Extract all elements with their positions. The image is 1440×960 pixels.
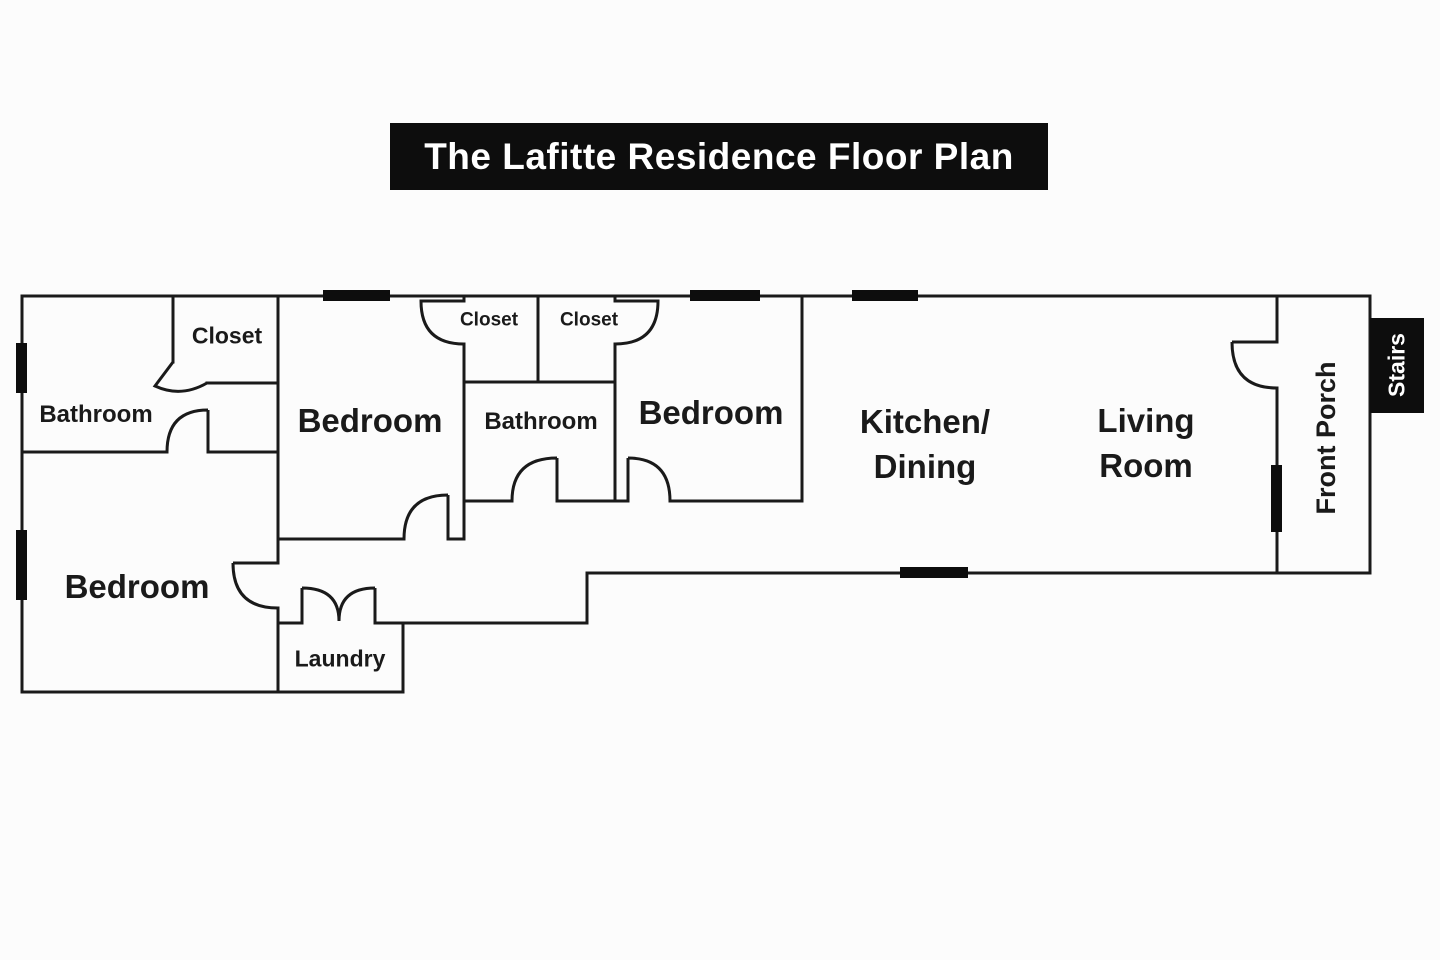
room-label-kitchen-dining: Kitchen/ Dining: [860, 399, 990, 489]
room-label-laundry: Laundry: [295, 646, 386, 671]
bedroom-right-door-swing: [628, 458, 670, 501]
bathroom-mid-door-swing: [512, 458, 557, 501]
exterior-walls: [22, 296, 1370, 692]
closet-mid-1-door-swing: [421, 301, 464, 344]
room-label-living-line2: Room: [1097, 443, 1194, 488]
window-marker-bottom-kitchen: [900, 567, 968, 578]
walls-group: [22, 296, 1370, 692]
front-porch-door-swing: [1232, 342, 1277, 388]
room-label-stairs: Stairs: [1384, 333, 1409, 397]
room-label-front-porch: Front Porch: [1312, 362, 1342, 515]
room-label-living-room: Living Room: [1097, 398, 1194, 488]
window-marker-bedroom-left: [16, 530, 27, 600]
window-marker-top-1: [323, 290, 390, 301]
closet-left-door-swing: [155, 362, 207, 391]
room-label-closet-mid-1: Closet: [460, 311, 518, 332]
room-label-bathroom-left: Bathroom: [39, 402, 152, 428]
floor-plan-canvas: The Lafitte Residence Floor Plan: [0, 0, 1440, 960]
window-marker-top-2: [690, 290, 760, 301]
bathroom-left-door-swing: [167, 410, 208, 452]
room-label-closet-mid-2: Closet: [560, 311, 618, 332]
bedroom-mid-door-swing: [404, 495, 448, 539]
laundry-double-door-swing: [302, 588, 375, 623]
bedroom-left-door-swing: [233, 563, 278, 608]
window-marker-top-3: [852, 290, 918, 301]
window-marker-living-porch: [1271, 465, 1282, 532]
floor-plan-drawing: [0, 0, 1440, 960]
room-label-bedroom-right: Bedroom: [639, 395, 784, 431]
room-label-kitchen-line1: Kitchen/: [860, 399, 990, 444]
room-label-kitchen-line2: Dining: [860, 444, 990, 489]
room-label-bedroom-left: Bedroom: [65, 569, 210, 605]
room-label-living-line1: Living: [1097, 398, 1194, 443]
interior-walls: [22, 296, 1277, 692]
room-label-closet-left: Closet: [192, 323, 262, 348]
room-label-bathroom-mid: Bathroom: [484, 409, 597, 435]
room-label-bedroom-mid: Bedroom: [298, 403, 443, 439]
closet-mid-2-door-swing: [615, 301, 658, 344]
window-marker-bathroom-left: [16, 343, 27, 393]
